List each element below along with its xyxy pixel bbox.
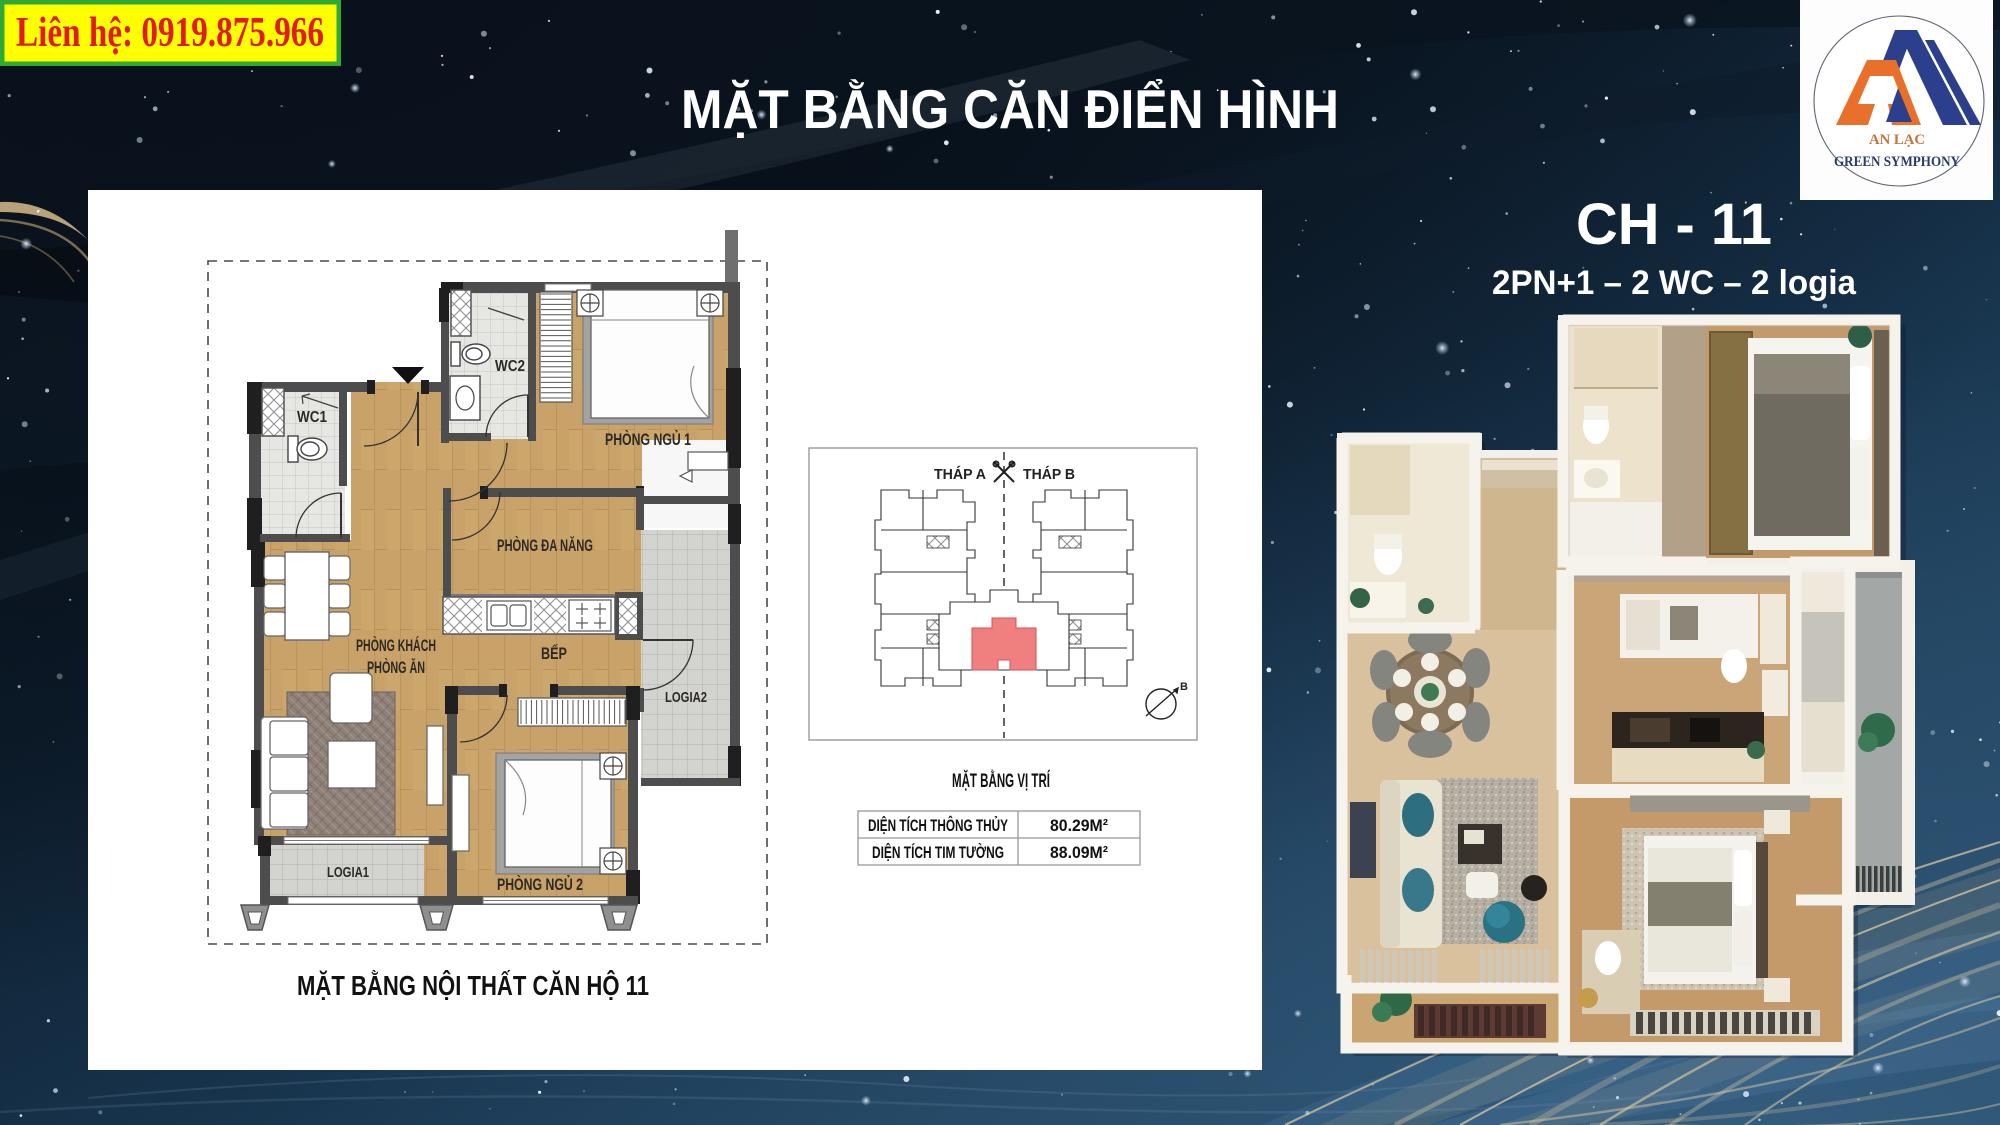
svg-text:MẶT BẰNG NỘI THẤT CĂN HỘ 11: MẶT BẰNG NỘI THẤT CĂN HỘ 11 — [297, 969, 649, 1001]
svg-text:PHÒNG NGỦ 2: PHÒNG NGỦ 2 — [497, 875, 583, 894]
svg-text:THÁP A: THÁP A — [934, 466, 986, 483]
svg-text:2PN+1 – 2 WC – 2 logia: 2PN+1 – 2 WC – 2 logia — [1492, 264, 1857, 302]
svg-text:WC1: WC1 — [297, 409, 327, 426]
svg-text:PHÒNG ĐA NĂNG: PHÒNG ĐA NĂNG — [497, 536, 593, 555]
svg-text:CH - 11: CH - 11 — [1576, 192, 1772, 257]
svg-text:THÁP B: THÁP B — [1023, 466, 1075, 483]
svg-text:B: B — [1180, 681, 1188, 693]
svg-text:PHÒNG ĂN: PHÒNG ĂN — [367, 658, 425, 677]
svg-text:80.29M²: 80.29M² — [1050, 816, 1108, 835]
svg-text:PHÒNG NGỦ 1: PHÒNG NGỦ 1 — [605, 430, 691, 449]
svg-text:WC2: WC2 — [495, 358, 525, 375]
svg-text:Liên hệ: 0919.875.966: Liên hệ: 0919.875.966 — [16, 10, 324, 56]
svg-text:LOGIA1: LOGIA1 — [327, 864, 369, 881]
svg-text:GREEN SYMPHONY: GREEN SYMPHONY — [1834, 154, 1960, 170]
svg-text:PHÒNG KHÁCH: PHÒNG KHÁCH — [356, 636, 436, 655]
svg-text:BẾP: BẾP — [541, 644, 567, 663]
svg-text:MẶT BẰNG VỊ TRÍ: MẶT BẰNG VỊ TRÍ — [952, 770, 1050, 792]
svg-text:MẶT BẰNG CĂN ĐIỂN HÌNH: MẶT BẰNG CĂN ĐIỂN HÌNH — [681, 78, 1339, 140]
svg-text:AN LẠC: AN LẠC — [1869, 132, 1925, 148]
svg-text:88.09M²: 88.09M² — [1050, 843, 1108, 862]
svg-text:DIỆN TÍCH THÔNG THỦY: DIỆN TÍCH THÔNG THỦY — [868, 816, 1008, 835]
svg-text:DIỆN TÍCH TIM TƯỜNG: DIỆN TÍCH TIM TƯỜNG — [872, 843, 1004, 862]
svg-text:LOGIA2: LOGIA2 — [665, 689, 707, 706]
